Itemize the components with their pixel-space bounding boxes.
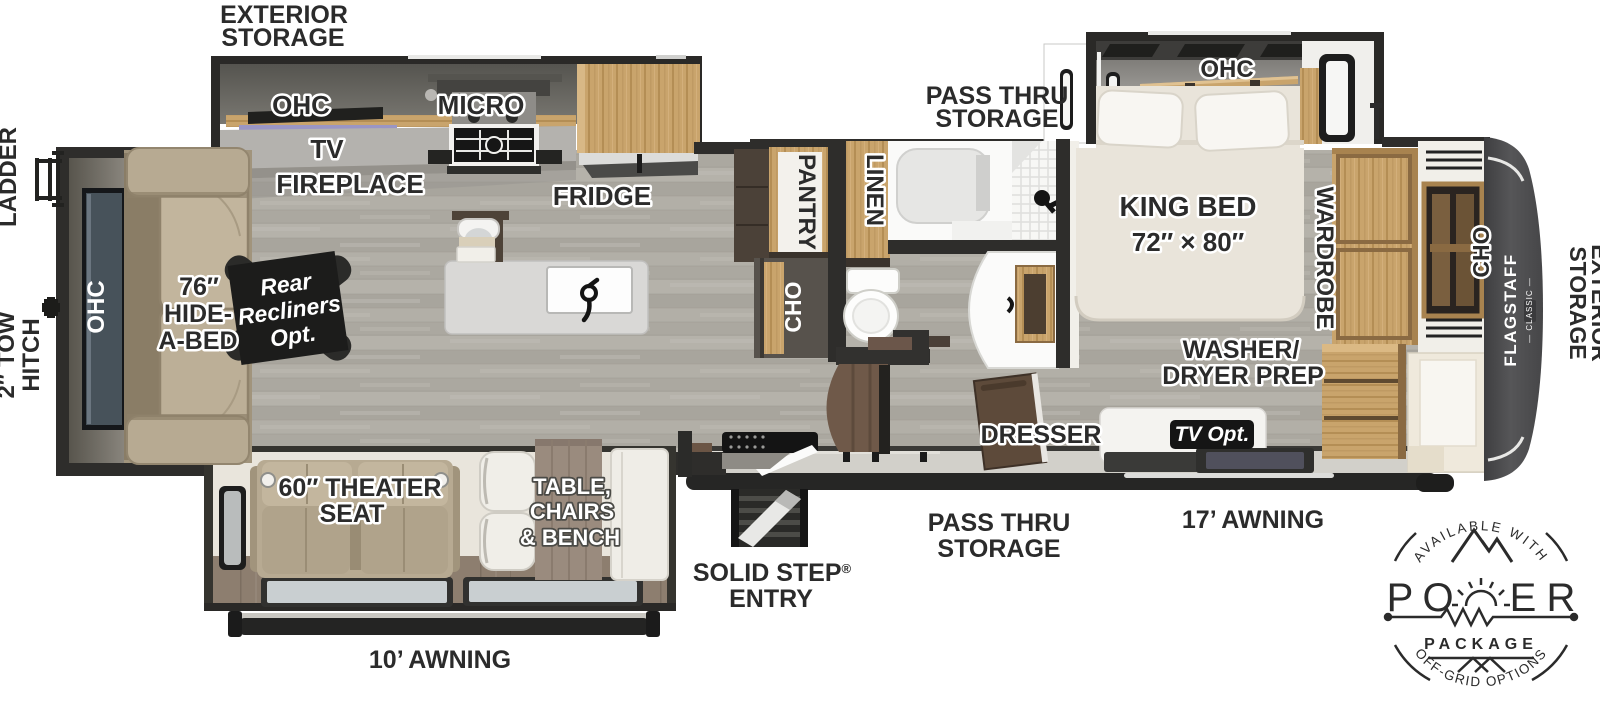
svg-text:72″ × 80″: 72″ × 80″ xyxy=(1132,227,1244,257)
svg-text:PASS THRU: PASS THRU xyxy=(928,509,1071,537)
svg-text:DRYER PREP: DRYER PREP xyxy=(1162,362,1324,390)
svg-text:SEAT: SEAT xyxy=(320,500,385,528)
svg-text:CHO: CHO xyxy=(780,281,806,332)
svg-text:& BENCH: & BENCH xyxy=(520,525,620,550)
svg-text:FLAGSTAFF: FLAGSTAFF xyxy=(1501,253,1520,366)
svg-text:10’ AWNING: 10’ AWNING xyxy=(369,646,511,674)
svg-text:FRIDGE: FRIDGE xyxy=(553,181,651,211)
svg-text:CHO: CHO xyxy=(1468,226,1494,277)
svg-text:R: R xyxy=(1547,576,1576,620)
svg-text:LADDER: LADDER xyxy=(0,127,22,227)
svg-text:HIDE-: HIDE- xyxy=(164,300,232,328)
svg-text:TV: TV xyxy=(310,134,344,164)
svg-text:2″ TOW: 2″ TOW xyxy=(0,311,20,398)
svg-text:PACKAGE: PACKAGE xyxy=(1424,636,1538,653)
svg-text:LINEN: LINEN xyxy=(861,154,888,226)
svg-text:— CLASSIC —: — CLASSIC — xyxy=(1525,277,1534,343)
svg-text:WASHER/: WASHER/ xyxy=(1183,336,1300,364)
svg-text:OHC: OHC xyxy=(1200,56,1253,83)
svg-text:A-BED: A-BED xyxy=(158,327,237,355)
svg-text:E: E xyxy=(1510,576,1537,620)
svg-text:TV Opt.: TV Opt. xyxy=(1175,423,1250,446)
svg-text:STORAGE: STORAGE xyxy=(1565,246,1591,359)
svg-text:OHC: OHC xyxy=(83,280,110,333)
svg-text:TABLE,: TABLE, xyxy=(533,474,611,499)
svg-text:STORAGE: STORAGE xyxy=(221,24,344,52)
svg-text:76″: 76″ xyxy=(179,273,219,301)
svg-text:SOLID STEP®: SOLID STEP® xyxy=(693,559,852,587)
svg-text:60″ THEATER: 60″ THEATER xyxy=(279,474,442,502)
svg-text:KING BED: KING BED xyxy=(1120,191,1257,222)
svg-text:STORAGE: STORAGE xyxy=(937,535,1060,563)
svg-text:CHAIRS: CHAIRS xyxy=(530,499,614,524)
svg-text:PANTRY: PANTRY xyxy=(793,154,820,250)
svg-text:DRESSER: DRESSER xyxy=(981,421,1102,449)
svg-text:OHC: OHC xyxy=(272,90,330,120)
svg-text:STORAGE: STORAGE xyxy=(935,105,1058,133)
svg-text:FIREPLACE: FIREPLACE xyxy=(276,169,423,199)
svg-text:ENTRY: ENTRY xyxy=(729,585,813,613)
svg-text:HITCH: HITCH xyxy=(18,318,45,391)
svg-text:WARDROBE: WARDROBE xyxy=(1311,187,1338,330)
svg-text:P: P xyxy=(1387,576,1414,620)
svg-text:MICRO: MICRO xyxy=(438,90,525,120)
svg-text:17’ AWNING: 17’ AWNING xyxy=(1182,506,1324,534)
